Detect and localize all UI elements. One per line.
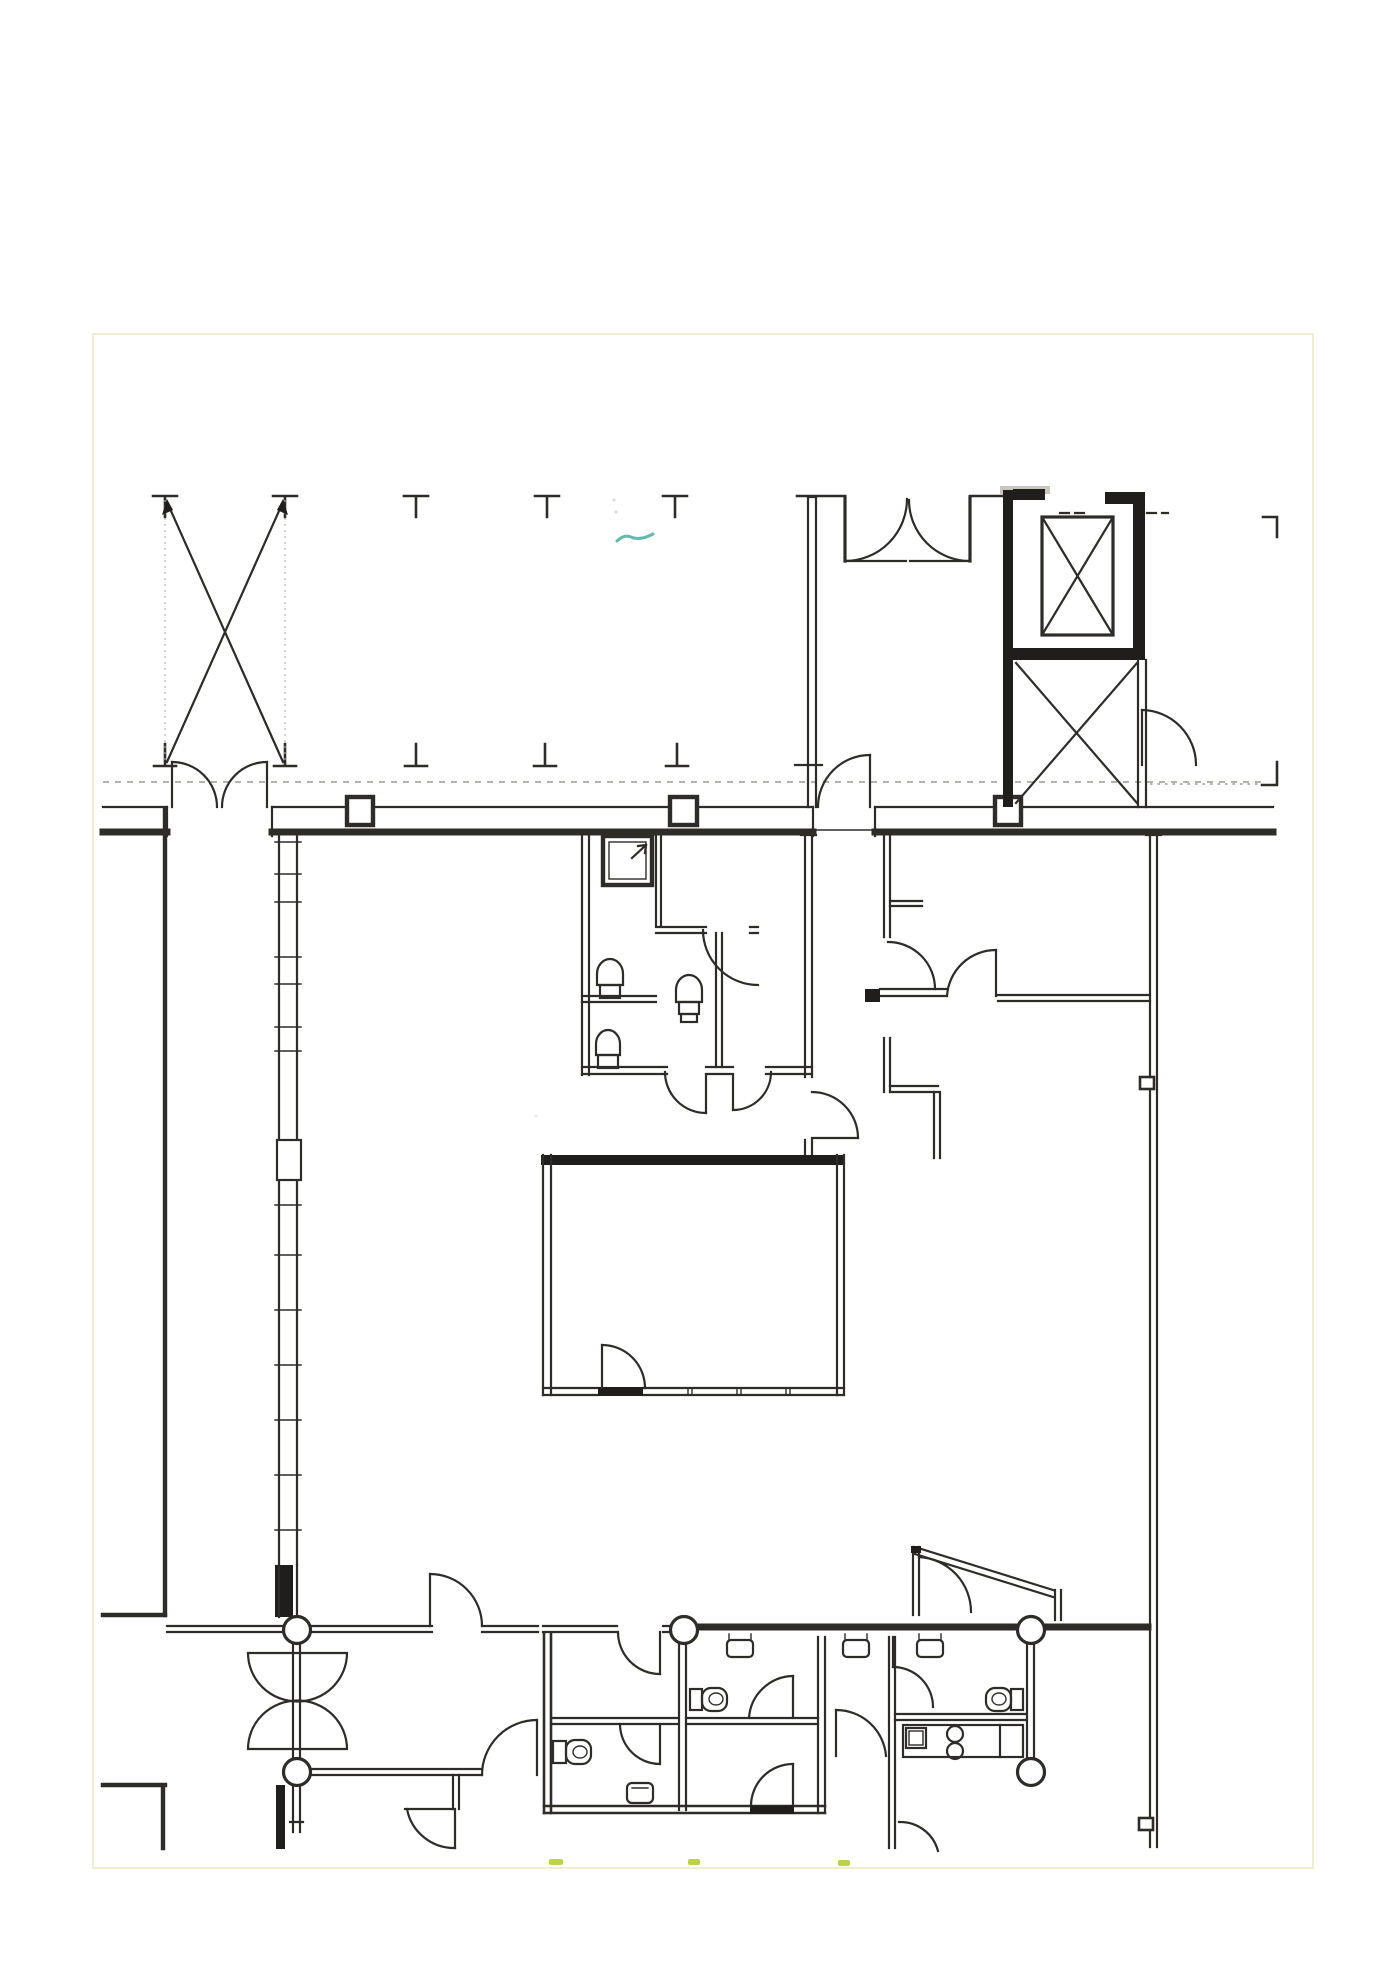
elevator-shaft [1000, 486, 1168, 660]
floor-plan-drawing [0, 0, 1400, 1980]
stair-lobby-wall [795, 497, 822, 807]
basin-icon [917, 1634, 943, 1657]
entry-double-door [172, 762, 267, 807]
shaft-side-door [1142, 710, 1196, 765]
meeting-room [541, 1155, 844, 1396]
toilet-icon-side [690, 1688, 727, 1711]
basin-icon [843, 1634, 869, 1657]
toilet-icon [597, 959, 623, 998]
shower-icon [603, 836, 652, 885]
cross-brace [162, 499, 288, 762]
interior-partition-left [275, 835, 301, 1617]
registration-marks [1262, 517, 1277, 785]
highlighter-marks [549, 1859, 850, 1866]
corridor-centre-door [812, 1092, 858, 1138]
kitchen-counter-icon [903, 1725, 1023, 1759]
corridor-top-door [818, 755, 870, 807]
corridor-wall-centre [801, 835, 858, 1160]
t-marker [153, 496, 687, 517]
stair-double-door [797, 496, 1003, 561]
vestibule-door [836, 1710, 886, 1756]
scanned-floor-plan-page [0, 0, 1400, 1980]
toilet-icon [596, 1030, 620, 1068]
grid-markers-top [153, 496, 688, 766]
stair-shaft [1003, 660, 1196, 807]
stall-door [733, 1072, 771, 1110]
stall-door [749, 1676, 793, 1718]
teal-pen-mark [617, 534, 653, 541]
stall-door [665, 1072, 706, 1113]
vestibule-door [405, 1809, 455, 1848]
exterior-wall-left [103, 810, 165, 1848]
stall-door [618, 1632, 660, 1674]
toilet-icon-side [986, 1688, 1023, 1711]
room-door [888, 942, 935, 989]
office-rooms-right [865, 835, 1150, 1158]
toilet-block-upper [582, 835, 812, 1113]
lobby-door [482, 1720, 537, 1775]
hall-door [430, 1574, 482, 1626]
structural-circle [284, 1617, 1045, 1786]
inverted-t-marker [154, 744, 688, 766]
toilet-icon [676, 975, 702, 1022]
kitchen-door [893, 1637, 933, 1707]
butterfly-door [248, 1643, 347, 1849]
corridor-wall-top [103, 797, 1273, 836]
toilet-icon-side [553, 1740, 591, 1764]
basin-icon [727, 1634, 753, 1657]
rear-door [899, 1822, 938, 1851]
meeting-room-door [602, 1345, 645, 1388]
lobby-door [703, 930, 758, 985]
toilet-block-lower-left [543, 1626, 825, 1813]
wall-column-box [347, 797, 1021, 825]
kitchen [843, 1634, 1034, 1759]
elevator-cab-icon [1042, 517, 1113, 635]
stall-door [751, 1764, 793, 1806]
exterior-wall-right [1139, 835, 1161, 1847]
urinal-icon [627, 1783, 653, 1803]
room-door [947, 950, 996, 996]
sloped-partition [911, 1546, 1061, 1620]
stall-door [620, 1724, 660, 1764]
sloped-partition-door [919, 1557, 971, 1612]
corridor-dashed-line [103, 782, 1262, 784]
toilet-block-lower-middle [686, 1634, 825, 1814]
lower-left-lobby [310, 1720, 537, 1848]
